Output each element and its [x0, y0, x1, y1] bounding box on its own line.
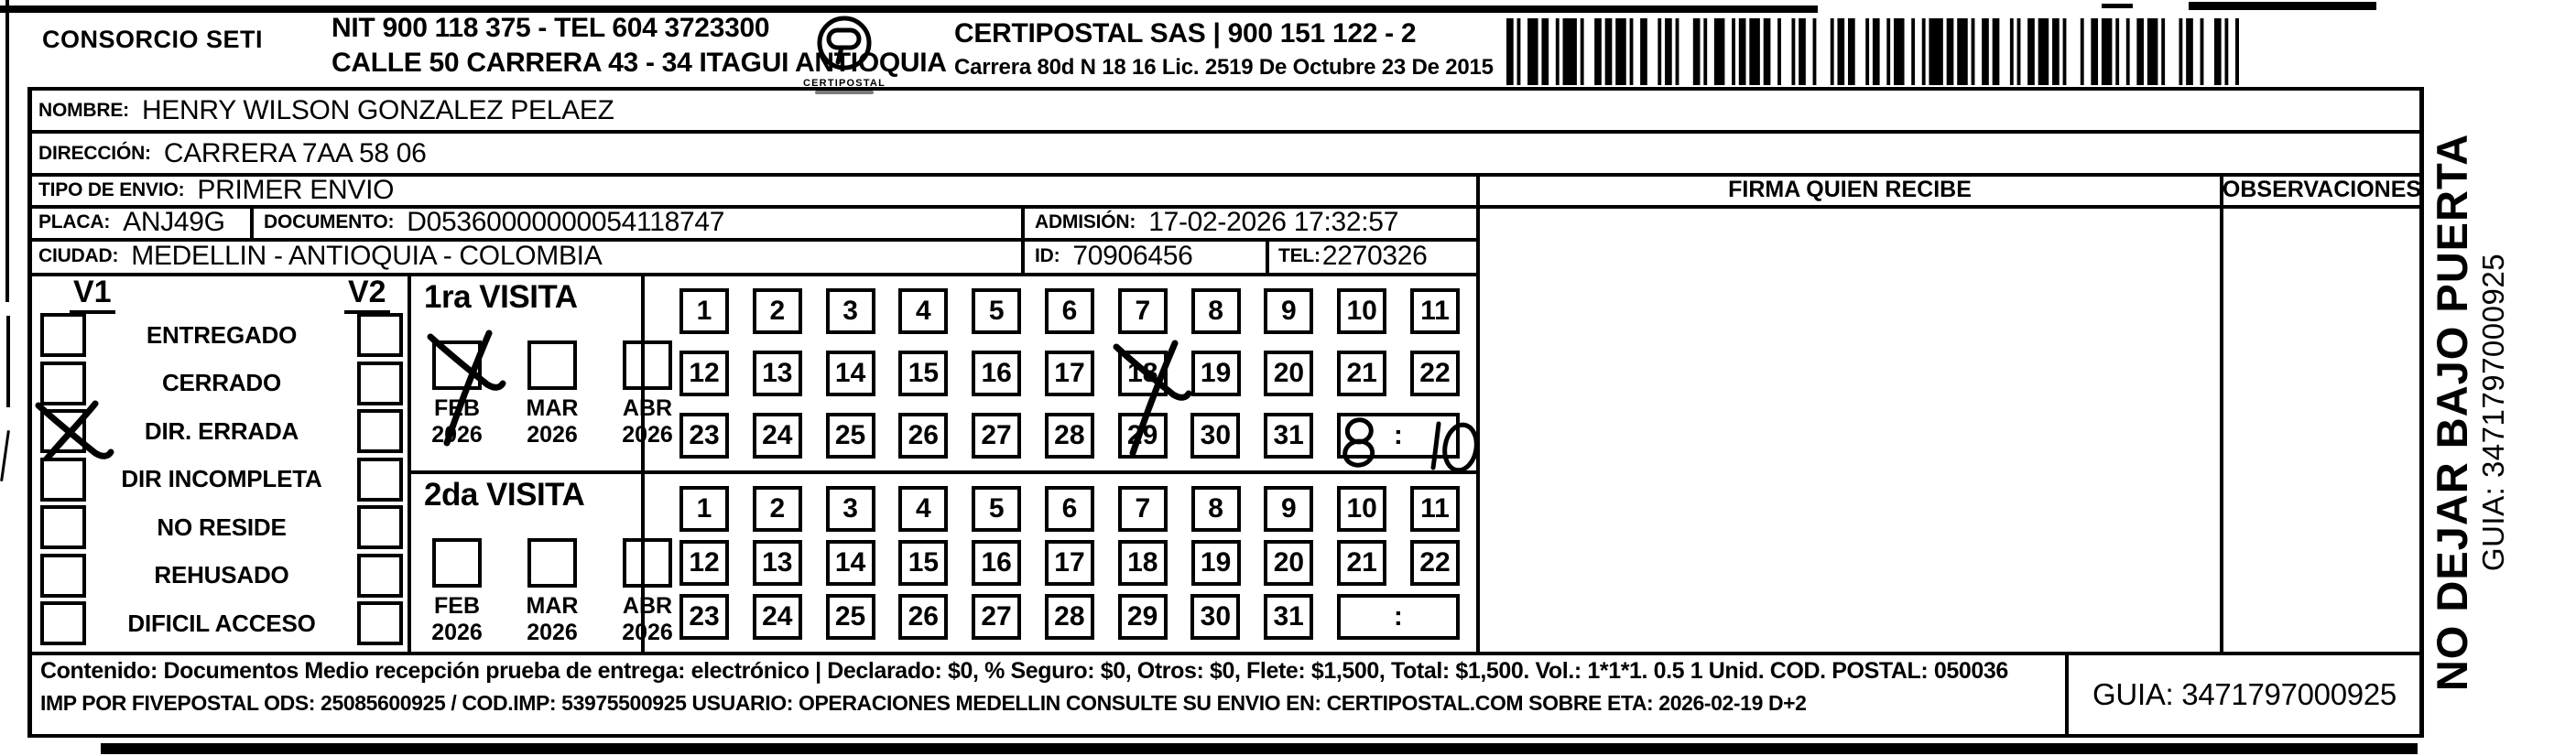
- day-21[interactable]: 21: [1337, 540, 1386, 586]
- side-guia-text: GUIA: 3471797000925: [2476, 254, 2511, 571]
- visita1-title: 1ra VISITA: [424, 279, 577, 316]
- day-7[interactable]: 7: [1118, 486, 1168, 532]
- day-11[interactable]: 11: [1410, 486, 1460, 532]
- day-15[interactable]: 15: [898, 351, 948, 396]
- checkbox-v1-entregado[interactable]: [40, 313, 86, 357]
- checkbox-v1-rehusado[interactable]: [40, 554, 86, 598]
- day-6[interactable]: 6: [1045, 486, 1094, 532]
- day-10[interactable]: 10: [1337, 486, 1386, 532]
- status-label: DIR. ERRADA: [86, 417, 357, 446]
- visita2-day-grid: 1234567891011121314151617181920212223242…: [645, 474, 1476, 652]
- day-19[interactable]: 19: [1191, 540, 1241, 586]
- day-23[interactable]: 23: [679, 594, 729, 640]
- admision-value: 17-02-2026 17:32:57: [1148, 207, 1398, 238]
- month-checkbox-feb[interactable]: [432, 340, 482, 390]
- day-2[interactable]: 2: [753, 288, 802, 334]
- checkbox-v1-cerrado[interactable]: [40, 362, 86, 405]
- day-24[interactable]: 24: [753, 413, 802, 459]
- month-year: 2026: [419, 422, 495, 448]
- footer-guia: GUIA: 3471797000925: [2069, 652, 2420, 738]
- side-warning-text: NO DEJAR BAJO PUERTA: [2429, 134, 2476, 691]
- scan-artifact: [5, 0, 9, 302]
- nombre-value: HENRY WILSON GONZALEZ PELAEZ: [142, 95, 614, 126]
- day-28[interactable]: 28: [1045, 413, 1094, 459]
- checkbox-v2-dir-incompleta[interactable]: [357, 458, 403, 502]
- day-25[interactable]: 25: [826, 594, 875, 640]
- id-label: ID:: [1035, 245, 1060, 267]
- day-5[interactable]: 5: [972, 288, 1021, 334]
- checkbox-v2-cerrado[interactable]: [357, 362, 403, 405]
- v2-column-header: V2: [344, 275, 390, 314]
- day-16[interactable]: 16: [972, 351, 1021, 396]
- day-10[interactable]: 10: [1337, 288, 1386, 334]
- month-label: MAR: [515, 395, 590, 422]
- nombre-label: NOMBRE:: [38, 100, 129, 122]
- status-row: NO RESIDE: [40, 503, 403, 551]
- visita2-title: 2da VISITA: [424, 477, 584, 513]
- day-29[interactable]: 29: [1118, 413, 1168, 459]
- scan-artifact: [0, 5, 1818, 13]
- month-checkbox-feb[interactable]: [432, 538, 482, 588]
- certipostal-logo: CERTIPOSTAL: [799, 15, 890, 94]
- placa-label: PLACA:: [38, 211, 110, 233]
- status-row: CERRADO: [40, 360, 403, 407]
- observaciones-area[interactable]: [2223, 209, 2420, 652]
- day-27[interactable]: 27: [972, 413, 1021, 459]
- day-12[interactable]: 12: [679, 540, 729, 586]
- day-13[interactable]: 13: [753, 540, 802, 586]
- day-22[interactable]: 22: [1410, 351, 1460, 396]
- status-label: NO RESIDE: [86, 513, 357, 542]
- scan-artifact: [101, 743, 2418, 754]
- v1-column-header: V1: [70, 275, 115, 314]
- month-option-feb: FEB2026: [419, 538, 495, 646]
- day-16[interactable]: 16: [972, 540, 1021, 586]
- day-4[interactable]: 4: [898, 288, 948, 334]
- tipo-envio-label: TIPO DE ENVIO:: [38, 179, 184, 201]
- visita1-day-grid: 1234567891011121314151617181920212223242…: [645, 276, 1476, 470]
- time-box[interactable]: :: [1337, 413, 1460, 459]
- day-23[interactable]: 23: [679, 413, 729, 459]
- checkbox-v1-dificil-acceso[interactable]: [40, 601, 86, 645]
- day-17[interactable]: 17: [1045, 540, 1094, 586]
- day-1[interactable]: 1: [679, 288, 729, 334]
- delivery-form-sheet: CONSORCIO SETI NIT 900 118 375 - TEL 604…: [0, 0, 2576, 756]
- day-20[interactable]: 20: [1264, 540, 1313, 586]
- firma-area[interactable]: [1480, 209, 2220, 652]
- month-year: 2026: [419, 620, 495, 646]
- day-14[interactable]: 14: [826, 351, 875, 396]
- direccion-value: CARRERA 7AA 58 06: [164, 138, 427, 169]
- documento-value: D05360000000054118747: [407, 207, 724, 238]
- day-19[interactable]: 19: [1191, 351, 1241, 396]
- month-option-mar: MAR2026: [515, 538, 590, 646]
- day-4[interactable]: 4: [898, 486, 948, 532]
- day-5[interactable]: 5: [972, 486, 1021, 532]
- id-value: 70906456: [1072, 241, 1192, 272]
- tipo-envio-value: PRIMER ENVIO: [197, 175, 394, 206]
- day-14[interactable]: 14: [826, 540, 875, 586]
- scan-artifact: [2102, 4, 2133, 8]
- observaciones-header: OBSERVACIONES: [2223, 175, 2420, 205]
- day-8[interactable]: 8: [1191, 288, 1241, 334]
- day-30[interactable]: 30: [1190, 594, 1240, 640]
- day-21[interactable]: 21: [1337, 351, 1386, 396]
- documento-label: DOCUMENTO:: [264, 211, 394, 233]
- day-6[interactable]: 6: [1045, 288, 1094, 334]
- day-20[interactable]: 20: [1264, 351, 1313, 396]
- day-2[interactable]: 2: [753, 486, 802, 532]
- status-row: DIFICIL ACCESO: [40, 599, 403, 647]
- status-label: DIR INCOMPLETA: [86, 465, 357, 493]
- day-24[interactable]: 24: [753, 594, 802, 640]
- status-label: REHUSADO: [86, 561, 357, 589]
- ciudad-value: MEDELLIN - ANTIOQUIA - COLOMBIA: [131, 241, 602, 272]
- placa-value: ANJ49G: [123, 207, 225, 238]
- firma-quien-recibe-header: FIRMA QUIEN RECIBE: [1480, 175, 2220, 205]
- day-26[interactable]: 26: [898, 594, 948, 640]
- time-box[interactable]: :: [1337, 594, 1460, 640]
- day-9[interactable]: 9: [1264, 288, 1313, 334]
- tel-value: 2270326: [1322, 241, 1428, 272]
- month-option-mar: MAR2026: [515, 340, 590, 448]
- day-15[interactable]: 15: [898, 540, 948, 586]
- consorcio-name: CONSORCIO SETI: [42, 26, 263, 54]
- scan-artifact: [2189, 2, 2376, 10]
- status-label: DIFICIL ACCESO: [86, 610, 357, 638]
- scan-artifact: [0, 430, 10, 481]
- scan-artifact: [6, 316, 10, 407]
- checkbox-v1-dir-errada[interactable]: [40, 409, 86, 453]
- day-31[interactable]: 31: [1264, 413, 1313, 459]
- day-18[interactable]: 18: [1118, 540, 1168, 586]
- licencia-line: Carrera 80d N 18 16 Lic. 2519 De Octubre…: [954, 55, 1494, 81]
- status-row: REHUSADO: [40, 552, 403, 599]
- side-note: NO DEJAR BAJO PUERTA GUIA: 3471797000925: [2429, 87, 2571, 738]
- status-row: DIR INCOMPLETA: [40, 456, 403, 503]
- month-label: FEB: [419, 395, 495, 422]
- day-22[interactable]: 22: [1410, 540, 1460, 586]
- month-checkbox-mar[interactable]: [527, 538, 577, 588]
- tel-label: TEL:: [1278, 245, 1321, 267]
- status-row: DIR. ERRADA: [40, 407, 403, 455]
- checkbox-v2-dificil-acceso[interactable]: [357, 601, 403, 645]
- day-29[interactable]: 29: [1118, 594, 1168, 640]
- checkbox-v2-rehusado[interactable]: [357, 554, 403, 598]
- ciudad-label: CIUDAD:: [38, 245, 118, 267]
- day-1[interactable]: 1: [679, 486, 729, 532]
- day-9[interactable]: 9: [1264, 486, 1313, 532]
- checkbox-v1-no-reside[interactable]: [40, 505, 86, 549]
- footer-imp-line: IMP POR FIVEPOSTAL ODS: 25085600925 / CO…: [40, 691, 1807, 716]
- month-option-feb: FEB2026: [419, 340, 495, 448]
- day-25[interactable]: 25: [826, 413, 875, 459]
- direccion-label: DIRECCIÓN:: [38, 143, 151, 165]
- day-17[interactable]: 17: [1045, 351, 1094, 396]
- certipostal-line: CERTIPOSTAL SAS | 900 151 122 - 2: [954, 18, 1416, 49]
- month-label: MAR: [515, 593, 590, 620]
- day-28[interactable]: 28: [1045, 594, 1094, 640]
- month-year: 2026: [515, 422, 590, 448]
- month-label: FEB: [419, 593, 495, 620]
- day-30[interactable]: 30: [1190, 413, 1240, 459]
- time-separator: :: [1394, 420, 1403, 451]
- month-year: 2026: [515, 620, 590, 646]
- day-13[interactable]: 13: [753, 351, 802, 396]
- footer-contenido-line: Contenido: Documentos Medio recepción pr…: [40, 658, 2008, 685]
- checkbox-v1-dir-incompleta[interactable]: [40, 458, 86, 502]
- day-7[interactable]: 7: [1118, 288, 1168, 334]
- day-27[interactable]: 27: [972, 594, 1021, 640]
- admision-label: ADMISIÓN:: [1035, 211, 1136, 233]
- time-separator: :: [1394, 601, 1403, 632]
- day-3[interactable]: 3: [826, 288, 875, 334]
- day-11[interactable]: 11: [1410, 288, 1460, 334]
- certipostal-logo-icon: [811, 15, 877, 75]
- barcode-image: [1506, 18, 2239, 85]
- day-8[interactable]: 8: [1191, 486, 1241, 532]
- checkbox-v2-dir-errada[interactable]: [357, 409, 403, 453]
- day-3[interactable]: 3: [826, 486, 875, 532]
- checkbox-v2-entregado[interactable]: [357, 313, 403, 357]
- day-18[interactable]: 18: [1118, 351, 1168, 396]
- day-31[interactable]: 31: [1264, 594, 1313, 640]
- status-row: ENTREGADO: [40, 311, 403, 359]
- status-label: CERRADO: [86, 369, 357, 397]
- nit-line: NIT 900 118 375 - TEL 604 3723300: [332, 13, 769, 44]
- checkbox-v2-no-reside[interactable]: [357, 505, 403, 549]
- status-label: ENTREGADO: [86, 321, 357, 350]
- day-26[interactable]: 26: [898, 413, 948, 459]
- month-checkbox-mar[interactable]: [527, 340, 577, 390]
- day-12[interactable]: 12: [679, 351, 729, 396]
